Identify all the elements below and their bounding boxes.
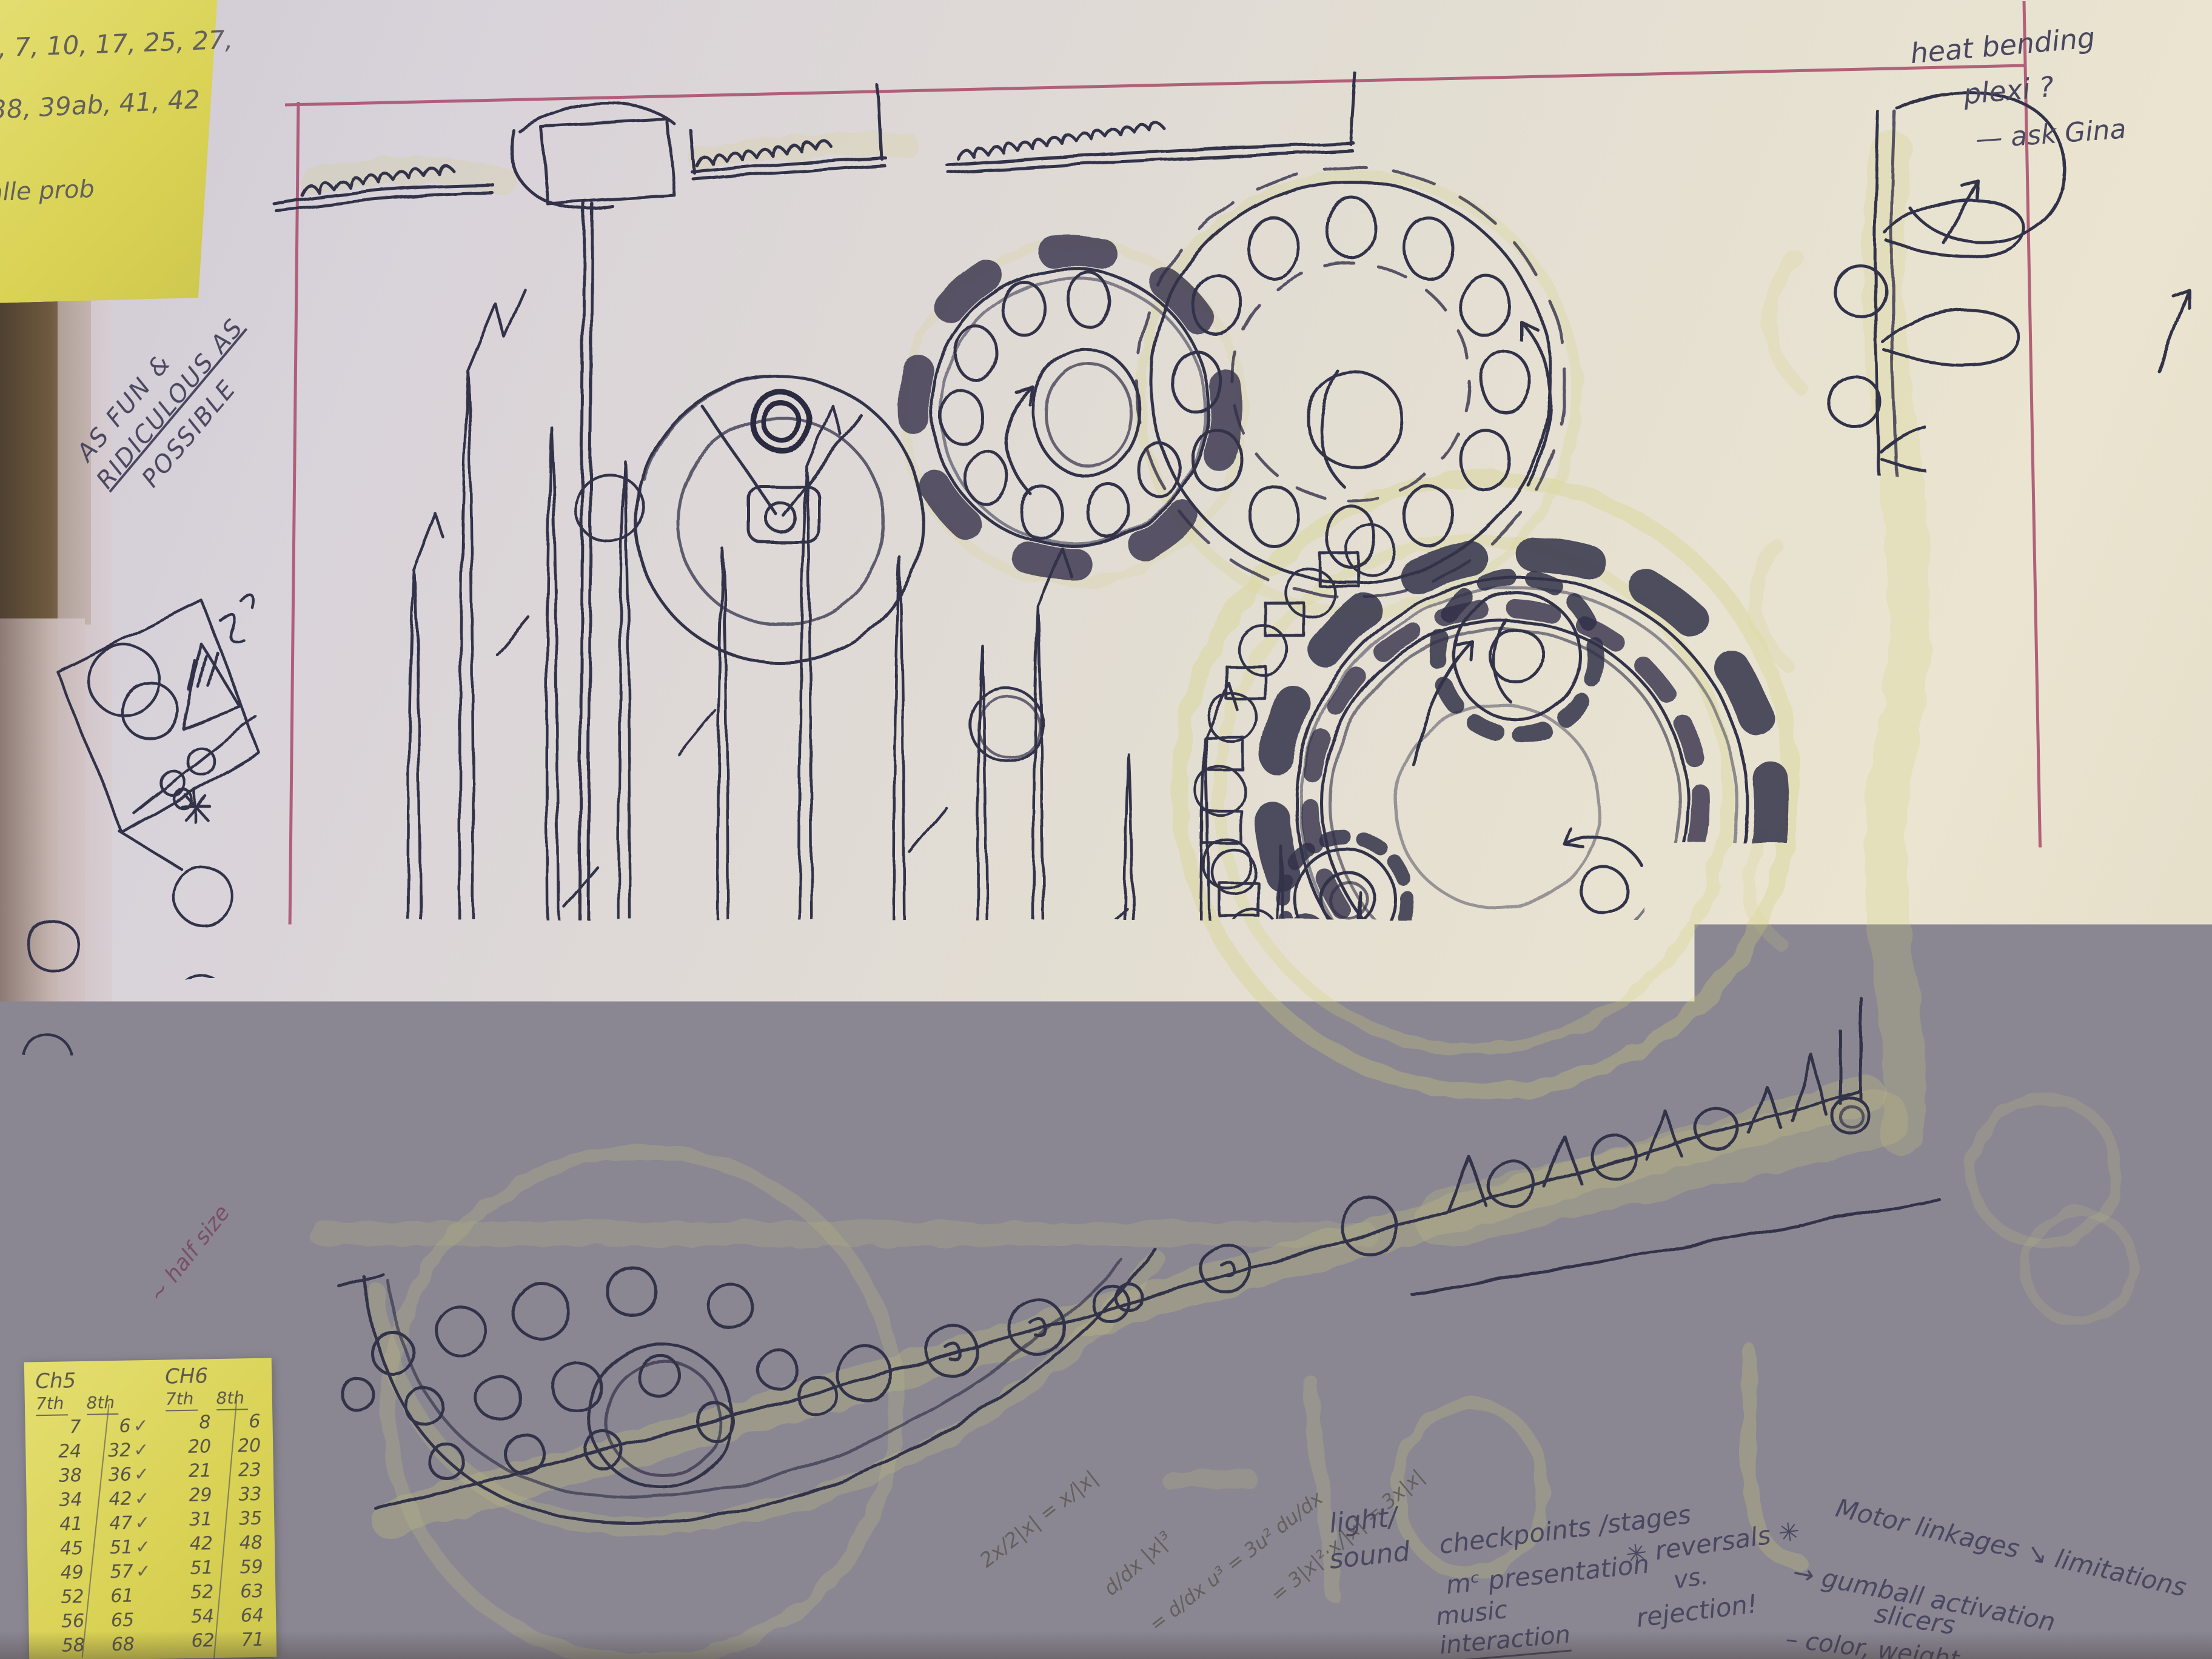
table-row: 5261	[39, 1584, 161, 1610]
margin-thumbnail-frames	[39, 595, 260, 1352]
table-row: 5464	[169, 1603, 291, 1629]
table-rows: 76✓2432✓3836✓3442✓4147✓4551✓4957✓5261566…	[36, 1414, 161, 1658]
table-row: 4147✓	[38, 1511, 159, 1537]
table-row: 3135	[167, 1506, 289, 1532]
table-row: 2123	[167, 1458, 289, 1484]
table-rows: 86202021232933313542485159526354646271	[166, 1409, 291, 1654]
table-row: 3836✓	[37, 1463, 159, 1489]
col-header: 8th	[86, 1392, 118, 1415]
note-vs: vs.	[1672, 1562, 1710, 1595]
curved-arrow-icon	[1938, 754, 1966, 826]
sticky-note-bottom-left: Ch5 7th 8th 76✓2432✓3836✓3442✓4147✓4551✓…	[24, 1358, 277, 1659]
col-header: 7th	[36, 1393, 68, 1416]
target-clock-dial	[636, 377, 922, 663]
hanging-box	[511, 104, 675, 209]
gear-train-cluster	[1272, 554, 1772, 1053]
table-row: 5263	[169, 1579, 290, 1605]
double-arrow-icon	[1171, 1499, 1238, 1522]
photo-edge-shadow	[0, 1631, 2212, 1659]
pendulum-rod-and-bob	[551, 204, 652, 1131]
table-row: 2020	[166, 1433, 288, 1460]
table-title: CH6	[165, 1362, 287, 1389]
table-ch5: Ch5 7th 8th 76✓2432✓3836✓3442✓4147✓4551✓…	[35, 1367, 161, 1658]
star-doodle	[73, 1305, 98, 1352]
border-left	[284, 102, 298, 1520]
sticky-note-line: alle prob	[0, 175, 95, 207]
border-right	[2024, 1, 2056, 1659]
table-row: 5665	[39, 1608, 161, 1634]
table-row: 86	[166, 1409, 287, 1435]
table-row: 2432✓	[36, 1438, 158, 1464]
up-arrow-icon	[2159, 290, 2189, 371]
photo-of-sketchbook: 5, 7, 10, 17, 25, 27, 38, 39ab, 41, 42 a…	[0, 0, 2212, 1659]
col-header: 7th	[166, 1389, 198, 1412]
table-row: 4957✓	[38, 1560, 160, 1586]
table-row: 76✓	[36, 1414, 158, 1440]
sketch-canvas	[0, 0, 2212, 1659]
up-arrow-icon	[1943, 181, 1978, 243]
col-header: 8th	[216, 1387, 248, 1410]
table-row: 4551✓	[38, 1535, 160, 1561]
table-title: Ch5	[35, 1367, 157, 1393]
star-doodle	[182, 791, 210, 822]
table-row: 4248	[168, 1530, 290, 1557]
table-ch6: CH6 7th 8th 8620202123293331354248515952…	[165, 1362, 291, 1654]
geneva-wheel	[914, 251, 1227, 564]
table-row: 5159	[168, 1555, 290, 1581]
margin-circles	[24, 867, 250, 1398]
border-top	[285, 65, 2025, 105]
